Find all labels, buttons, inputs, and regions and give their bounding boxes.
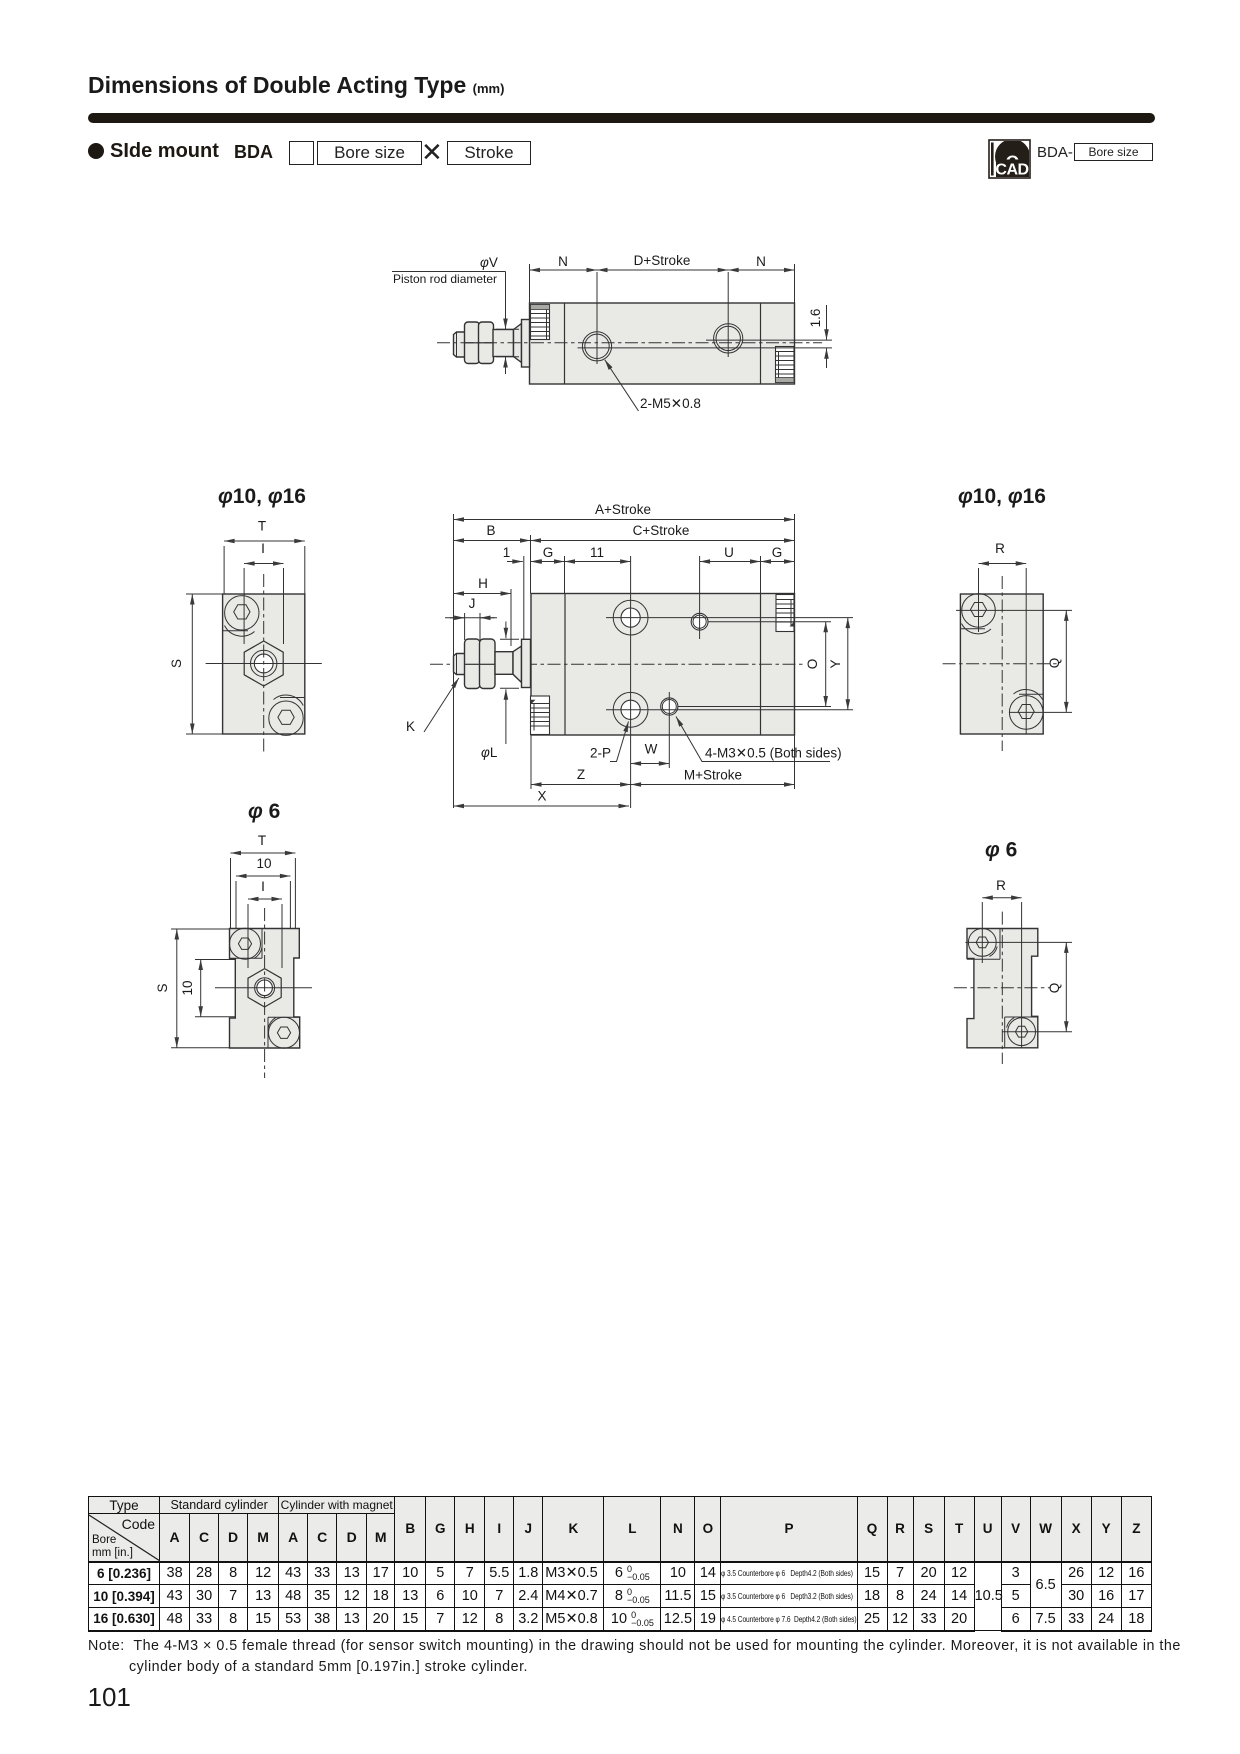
svg-text:Q: Q <box>1047 658 1062 669</box>
svg-text:Y: Y <box>828 659 843 668</box>
svg-text:U: U <box>724 545 734 560</box>
svg-text:N: N <box>756 254 766 269</box>
svg-text:φ 6: φ 6 <box>985 839 1017 862</box>
svg-text:4-M3✕0.5 (Both sides): 4-M3✕0.5 (Both sides) <box>705 746 842 761</box>
svg-text:T: T <box>258 519 266 534</box>
svg-text:X: X <box>537 789 546 804</box>
svg-text:φ10, φ16: φ10, φ16 <box>218 485 306 508</box>
svg-text:M+Stroke: M+Stroke <box>684 768 742 783</box>
svg-text:R: R <box>995 541 1005 556</box>
svg-text:I: I <box>261 879 265 894</box>
svg-text:1: 1 <box>503 545 511 560</box>
svg-text:W: W <box>645 742 658 757</box>
svg-text:A+Stroke: A+Stroke <box>595 502 651 517</box>
svg-text:N: N <box>558 254 568 269</box>
svg-text:J: J <box>469 596 476 611</box>
svg-text:B: B <box>486 523 495 538</box>
svg-text:C+Stroke: C+Stroke <box>633 523 690 538</box>
svg-text:S: S <box>169 659 184 668</box>
svg-text:G: G <box>543 545 554 560</box>
svg-text:S: S <box>155 983 170 992</box>
svg-text:φV: φV <box>480 255 498 270</box>
svg-text:O: O <box>805 659 820 670</box>
svg-text:10: 10 <box>256 856 271 871</box>
svg-text:1.6: 1.6 <box>808 309 823 328</box>
svg-text:2-P: 2-P <box>590 746 611 761</box>
svg-text:10: 10 <box>180 980 195 995</box>
svg-text:D+Stroke: D+Stroke <box>634 253 691 268</box>
svg-text:Piston rod diameter: Piston rod diameter <box>393 272 497 286</box>
svg-text:T: T <box>258 833 266 848</box>
svg-text:H: H <box>478 576 488 591</box>
svg-text:I: I <box>261 541 265 556</box>
svg-text:2-M5✕0.8: 2-M5✕0.8 <box>640 396 701 411</box>
svg-text:Z: Z <box>577 767 585 782</box>
svg-text:φ 6: φ 6 <box>248 800 280 823</box>
svg-text:Q: Q <box>1047 983 1062 994</box>
svg-text:G: G <box>772 545 783 560</box>
svg-text:K: K <box>406 719 415 734</box>
svg-text:φ10, φ16: φ10, φ16 <box>958 485 1046 508</box>
svg-text:R: R <box>996 878 1006 893</box>
svg-text:φL: φL <box>481 745 498 760</box>
svg-text:11: 11 <box>590 545 604 560</box>
